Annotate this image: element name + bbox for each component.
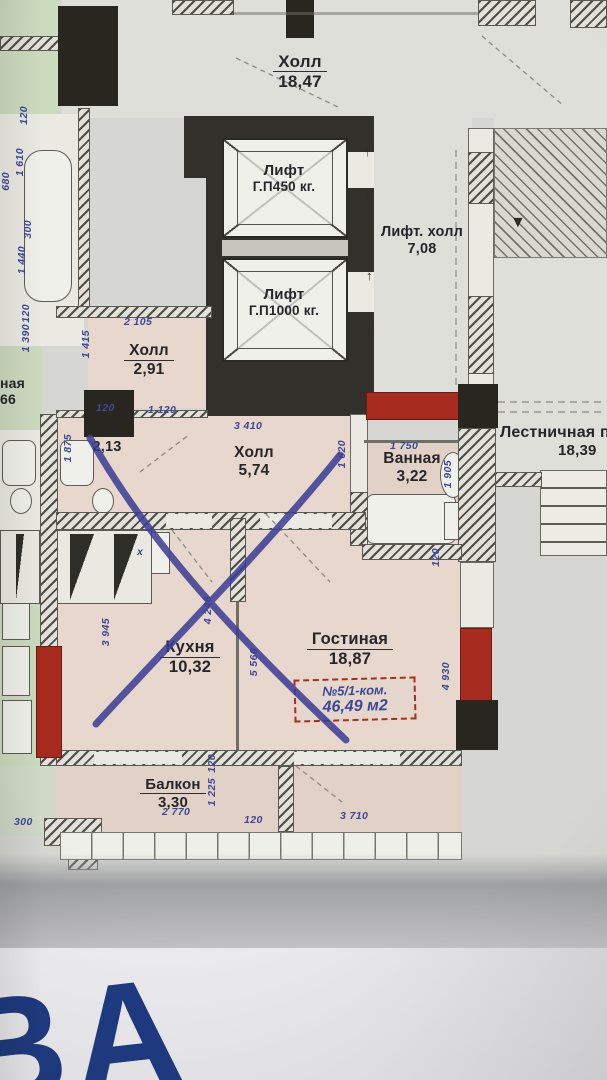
room-label-lift-1000: Лифт Г.П1000 кг. xyxy=(224,286,344,318)
sink-mark: x xyxy=(137,546,143,558)
dim-text: 1 905 xyxy=(442,460,454,488)
room-label-wc: С/У 2,13 xyxy=(76,422,138,455)
watermark-letters: ВА xyxy=(0,953,204,1080)
lift-door-arrow-down-icon: ↓ xyxy=(366,322,373,337)
room-label-lift-450: Лифт Г.П450 кг. xyxy=(224,162,344,194)
dim-text: 4 930 xyxy=(440,662,452,690)
dim-text: 120 xyxy=(244,814,263,826)
room-name: Балкон xyxy=(140,776,205,794)
dim-text: 1 750 xyxy=(390,440,418,452)
room-name: Холл xyxy=(273,52,326,72)
dim-text: 1 875 xyxy=(62,434,74,462)
room-label-stair-landing: Лестничная п xyxy=(500,424,607,442)
dim-text: 4 246 xyxy=(202,596,214,624)
room-name: Кухня xyxy=(160,638,219,658)
room-name: Гостиная xyxy=(307,630,393,650)
lift-door-arrow-up-icon: ↑ xyxy=(366,268,373,283)
room-area-stair-landing: 18,39 xyxy=(558,442,597,459)
neighbor-room-area-fragment: 66 xyxy=(0,392,16,408)
stairs-direction-arrow-icon: ▼ xyxy=(510,214,526,232)
dim-text: 5 560 xyxy=(248,648,260,676)
room-label-hall-entry: Холл 2,91 xyxy=(108,342,190,378)
room-label-living: Гостиная 18,87 xyxy=(290,630,410,669)
dim-text: 1 610 xyxy=(14,148,26,176)
dim-text: 1 440 xyxy=(16,246,28,274)
dim-text: 680 xyxy=(0,172,12,191)
apartment-stamp: №5/1-ком. 46,49 м2 xyxy=(293,676,416,722)
room-area: 5,74 xyxy=(212,462,296,480)
lift-name: Лифт xyxy=(224,162,344,179)
room-area: 2,13 xyxy=(76,439,138,456)
dim-text: 1 415 xyxy=(80,330,92,358)
lift-capacity: Г.П450 кг. xyxy=(224,179,344,194)
dim-text: 1 120 xyxy=(148,404,176,416)
room-area: 18,87 xyxy=(290,650,410,669)
lift-name: Лифт xyxy=(224,286,344,303)
dim-text: 1 390 xyxy=(20,324,32,352)
room-name: Холл xyxy=(212,444,296,462)
neighbor-room-name-fragment: ная xyxy=(0,376,25,392)
dim-text: 3 410 xyxy=(234,420,262,432)
dim-text: 120 xyxy=(430,548,442,567)
lift-capacity: Г.П1000 кг. xyxy=(224,303,344,318)
dim-text: 2 105 xyxy=(124,316,152,328)
dim-text: 3 710 xyxy=(340,810,368,822)
dim-text: 3 945 xyxy=(100,618,112,646)
dim-text: 2 770 xyxy=(162,806,190,818)
dim-text: 120 xyxy=(18,106,30,125)
dim-text: 120 xyxy=(96,402,115,414)
room-name: С/У xyxy=(76,422,138,439)
room-label-hall-top: Холл 18,47 xyxy=(240,52,360,92)
dim-text: 300 xyxy=(22,220,34,239)
lift-door-arrow-up-icon: ↑ xyxy=(364,144,371,159)
photo-table-edge xyxy=(0,854,607,962)
room-area: 2,91 xyxy=(108,361,190,379)
lift-door-arrow-down-icon: ↓ xyxy=(364,188,371,203)
room-label-lift-hall: Лифт. холл 7,08 xyxy=(374,224,470,257)
room-label-kitchen: Кухня 10,32 xyxy=(140,638,240,677)
room-label-hall-inner: Холл 5,74 xyxy=(212,444,296,479)
dim-text: 1 620 xyxy=(336,440,348,468)
room-area: 10,32 xyxy=(140,658,240,677)
room-name: Холл xyxy=(124,342,174,361)
dim-text: 300 xyxy=(14,816,33,828)
dim-text: 120 xyxy=(20,304,32,323)
room-area: 7,08 xyxy=(374,241,470,258)
dim-text: 120 xyxy=(206,754,218,773)
dim-text: 1 225 xyxy=(206,778,218,806)
stamp-total-area: 46,49 м2 xyxy=(303,697,407,718)
floor-plan-photo: Холл 18,47 Лифт Г.П450 кг. Лифт Г.П1000 … xyxy=(0,0,607,1080)
room-area: 18,47 xyxy=(240,72,360,91)
room-name: Лифт. холл xyxy=(374,224,470,241)
